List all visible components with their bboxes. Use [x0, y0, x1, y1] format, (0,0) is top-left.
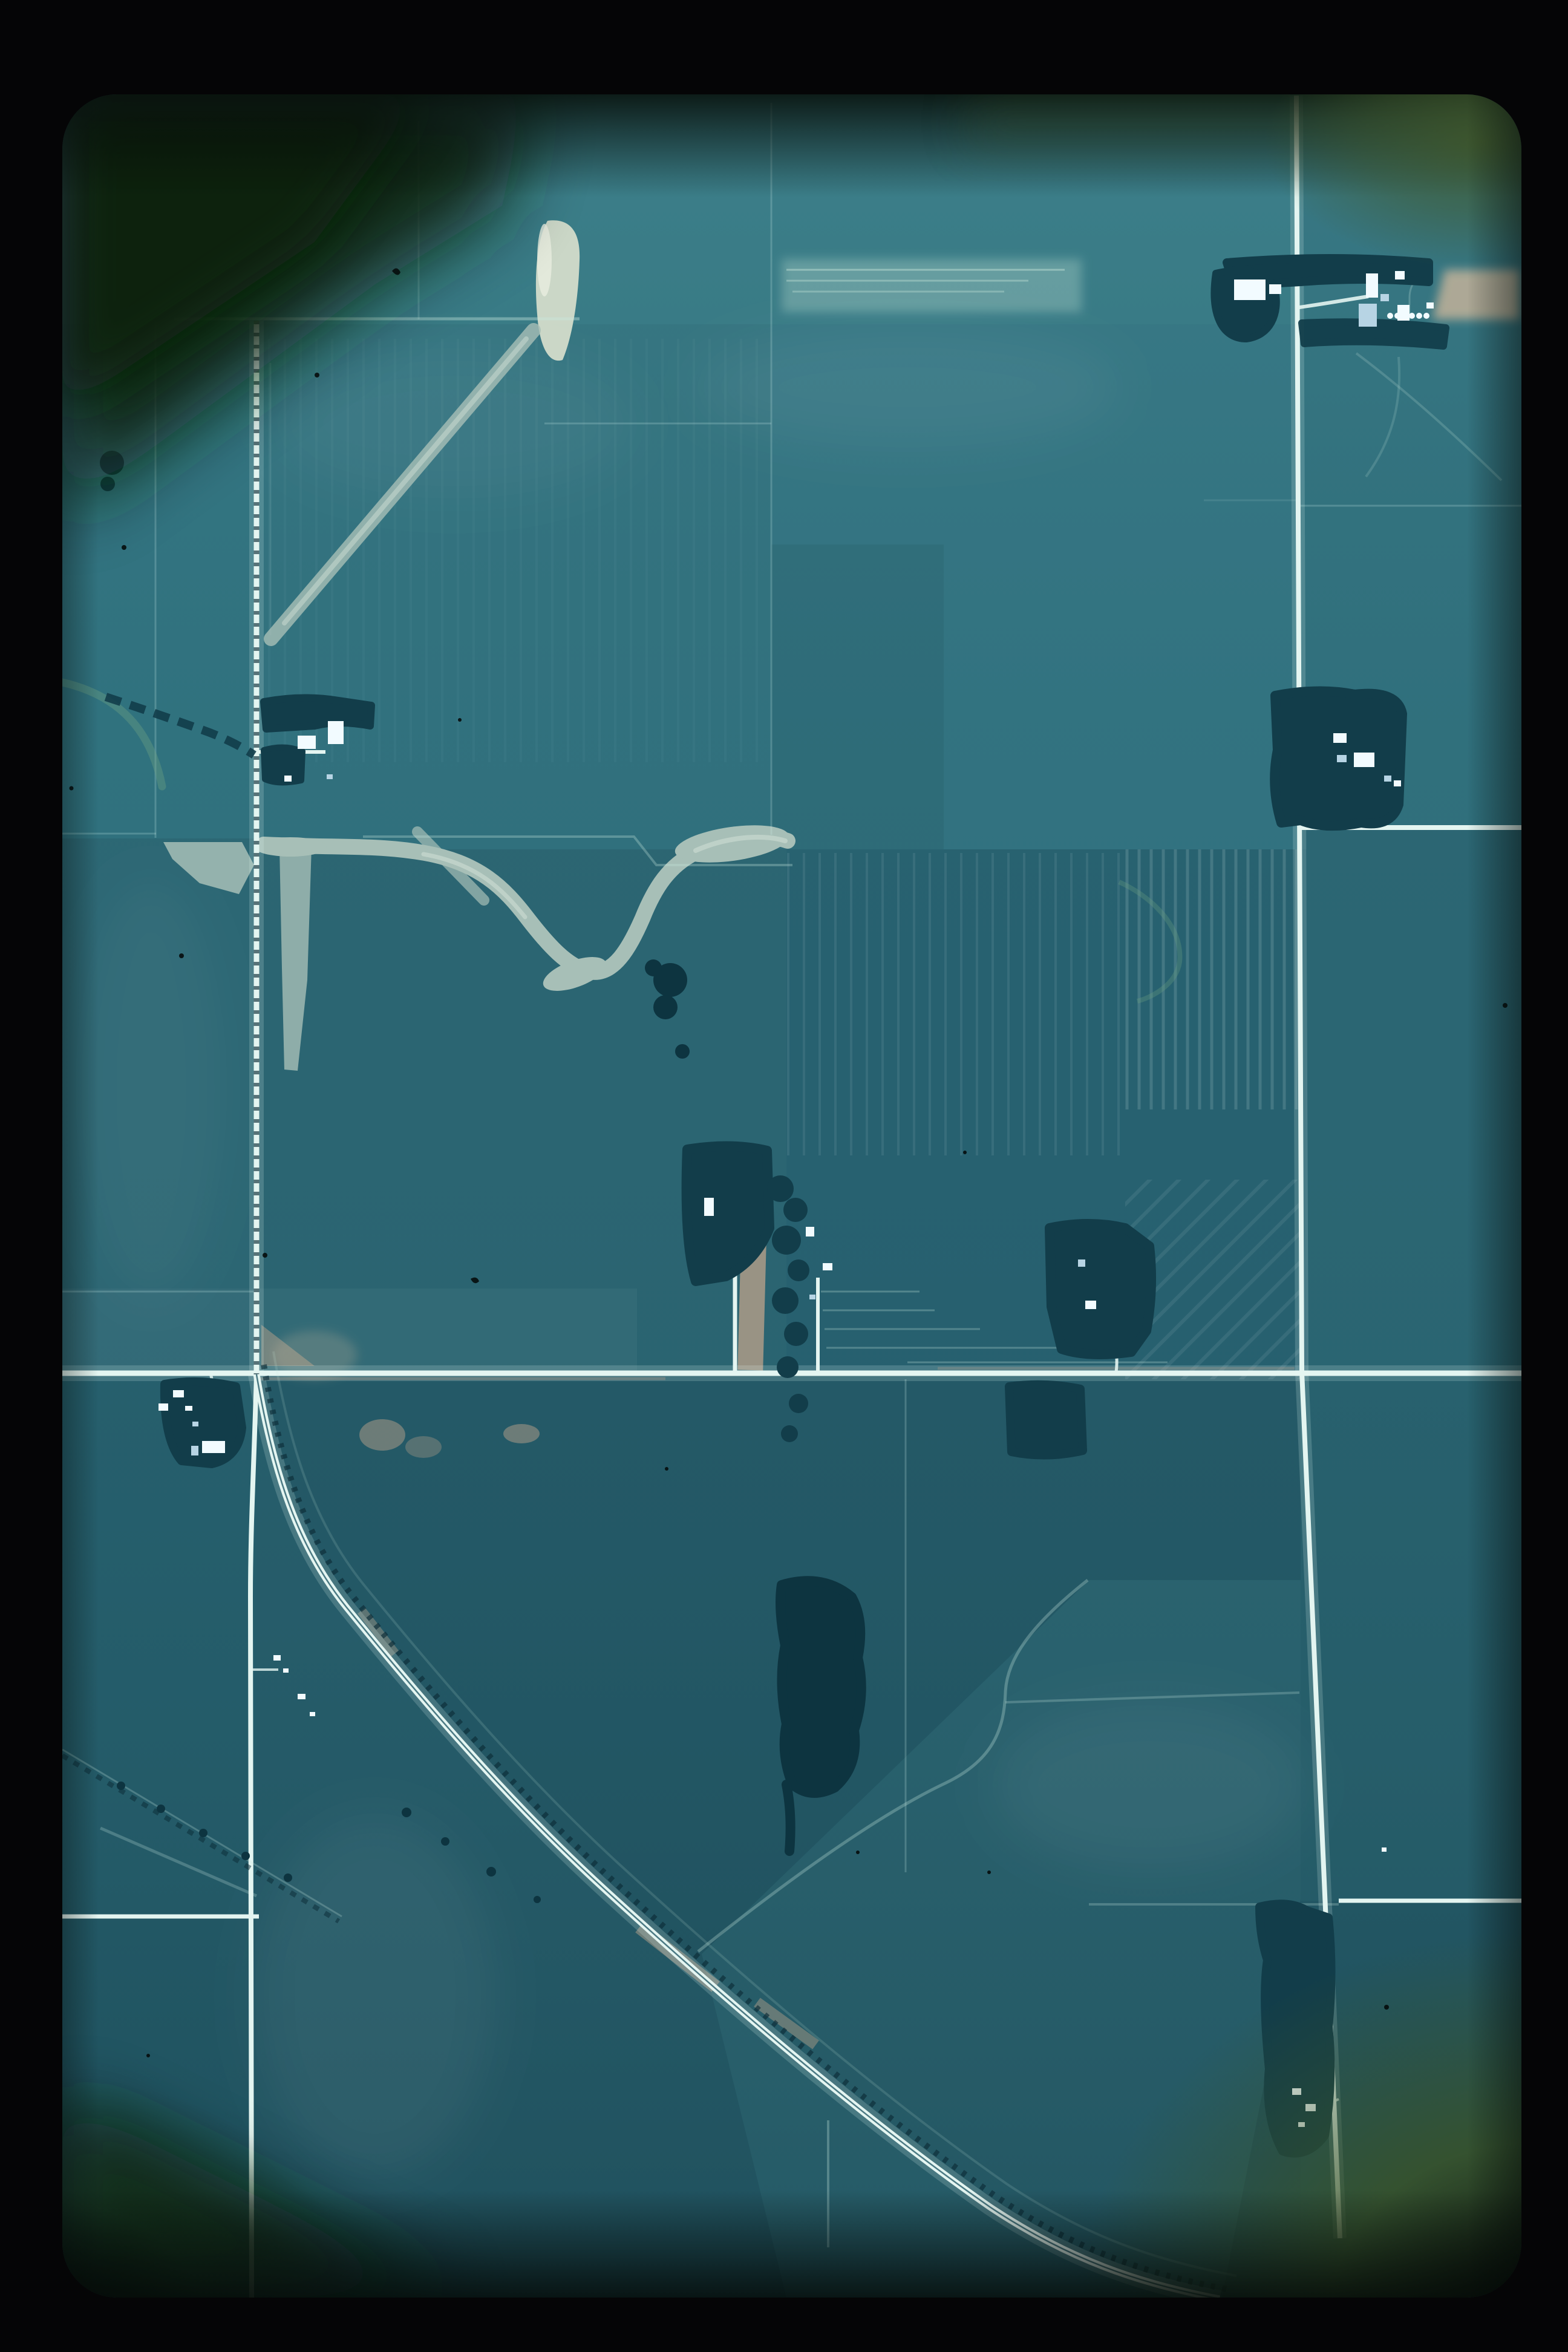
dust-speck	[1503, 1003, 1508, 1008]
dust-speck	[146, 2054, 150, 2057]
vignette-right-edge	[1467, 94, 1521, 2298]
tree-speck	[199, 1829, 207, 1837]
tree-speck	[284, 1873, 292, 1882]
building	[158, 1403, 168, 1411]
dust-speck	[856, 1851, 860, 1854]
tree-speck	[441, 1837, 449, 1846]
grove-below-road	[1009, 1385, 1083, 1455]
building	[1382, 1847, 1387, 1852]
building	[185, 1406, 192, 1411]
building	[1078, 1259, 1085, 1267]
building	[298, 1694, 305, 1699]
tree-clump	[781, 1425, 798, 1442]
tree-speck	[534, 1896, 541, 1903]
pond-bright-streak	[537, 224, 552, 296]
building	[273, 1655, 281, 1661]
slide-frame	[0, 0, 1568, 2352]
building	[1426, 302, 1434, 309]
building	[1085, 1301, 1096, 1309]
tree-clump	[653, 995, 678, 1019]
tree-clump	[777, 1356, 799, 1378]
soft-light-patch	[696, 327, 1119, 448]
building	[310, 1712, 315, 1716]
building	[1359, 304, 1377, 327]
building	[284, 776, 292, 782]
grove-bottom-blob-tail	[786, 1785, 791, 1851]
soft-light-patch	[992, 1700, 1307, 1869]
tree-clump	[789, 1394, 808, 1413]
dust-speck	[987, 1870, 991, 1874]
tree-clump	[772, 1226, 801, 1255]
building	[1384, 776, 1391, 782]
row-crop-stripes	[786, 853, 1125, 1155]
building	[1354, 753, 1374, 767]
grain-bin	[1423, 313, 1429, 319]
row-crop-stripes-bright	[1125, 849, 1301, 1109]
tree-speck	[157, 1805, 165, 1813]
soft-light-patch	[254, 1815, 496, 2178]
building	[191, 1446, 198, 1455]
tree-clump	[767, 1175, 794, 1202]
dust-speck	[458, 718, 462, 722]
building	[1269, 284, 1281, 294]
building	[1380, 294, 1389, 301]
tree-clump	[788, 1259, 809, 1281]
dust-speck	[315, 373, 319, 377]
building	[202, 1441, 225, 1453]
building	[1394, 780, 1401, 786]
building	[823, 1263, 832, 1270]
building	[704, 1198, 714, 1216]
dust-speck	[122, 545, 126, 550]
tree-speck	[241, 1852, 250, 1860]
tree-clump	[675, 1044, 690, 1059]
grove-right-farm	[1050, 1224, 1151, 1354]
dust-speck	[963, 1151, 967, 1154]
grain-bin	[1387, 313, 1393, 319]
dust-speck	[263, 1253, 267, 1258]
grove-railroad-farm-south	[264, 747, 302, 782]
building	[1234, 279, 1266, 300]
building	[1337, 755, 1347, 762]
tree-speck	[117, 1782, 125, 1790]
tan-patch	[359, 1419, 405, 1451]
soft-light-patch	[79, 877, 224, 1301]
building	[298, 736, 316, 749]
dust-speck	[70, 786, 74, 791]
tree-speck	[402, 1808, 411, 1817]
building	[283, 1668, 289, 1673]
grove-bottom-blob	[780, 1581, 861, 1793]
building	[806, 1227, 814, 1236]
grain-bin	[1394, 313, 1400, 319]
building	[192, 1422, 198, 1426]
grain-bin	[1409, 313, 1415, 319]
dust-speck	[1384, 2005, 1389, 2010]
grove-railroad-farm	[264, 697, 371, 729]
building	[328, 721, 344, 744]
tree-clump	[772, 1287, 799, 1314]
building	[1366, 273, 1378, 298]
tree-clump	[784, 1322, 808, 1346]
tree-speck	[486, 1867, 496, 1877]
tan-patch	[405, 1436, 442, 1458]
building	[173, 1390, 184, 1397]
tan-patch	[503, 1424, 540, 1443]
aerial-photo	[0, 0, 1568, 2352]
vignette-bottom-edge	[62, 2190, 1521, 2298]
grain-bin	[1402, 313, 1408, 319]
grain-bin	[1416, 313, 1422, 319]
light-band-upper-right	[782, 259, 1082, 312]
building	[809, 1295, 815, 1299]
tree-clump	[783, 1198, 808, 1222]
dust-speck	[179, 953, 184, 958]
vignette-left-edge	[62, 94, 99, 2298]
building	[327, 774, 333, 779]
dust-speck	[665, 1467, 668, 1471]
building	[1395, 271, 1405, 279]
building	[1333, 733, 1347, 743]
tree-clump	[645, 959, 662, 976]
